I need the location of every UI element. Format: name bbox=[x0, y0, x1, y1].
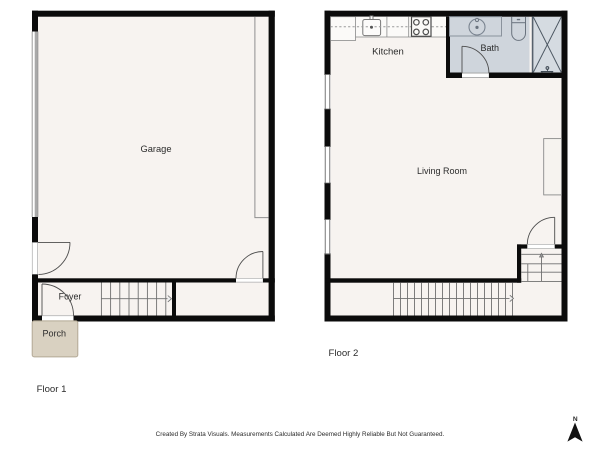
svg-text:Floor 1: Floor 1 bbox=[37, 384, 67, 395]
svg-text:N: N bbox=[573, 416, 578, 423]
svg-text:Foyer: Foyer bbox=[59, 292, 82, 302]
svg-text:Garage: Garage bbox=[140, 144, 171, 154]
svg-text:Bath: Bath bbox=[481, 43, 500, 53]
svg-text:Porch: Porch bbox=[43, 329, 67, 339]
svg-text:Living Room: Living Room bbox=[417, 166, 467, 176]
svg-text:Floor 2: Floor 2 bbox=[329, 348, 359, 359]
svg-text:Kitchen: Kitchen bbox=[372, 47, 404, 58]
svg-text:Created By Strata Visuals. Mea: Created By Strata Visuals. Measurements … bbox=[156, 431, 445, 438]
